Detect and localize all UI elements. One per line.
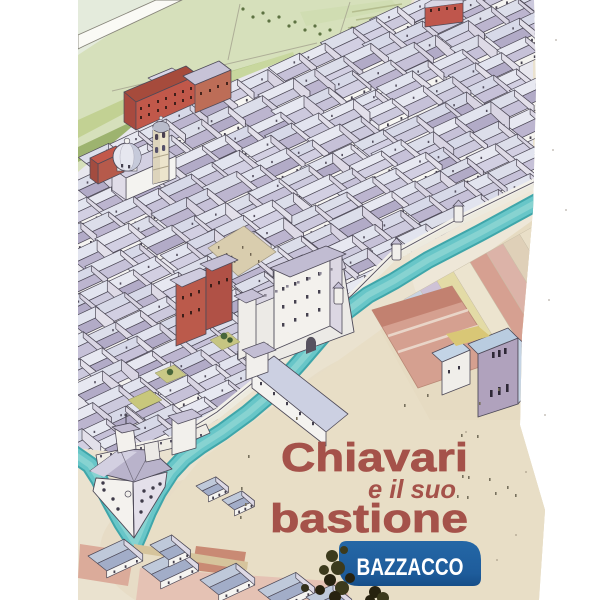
svg-text:BAZZACCO: BAZZACCO [357,554,464,581]
svg-text:bastione: bastione [270,497,468,541]
